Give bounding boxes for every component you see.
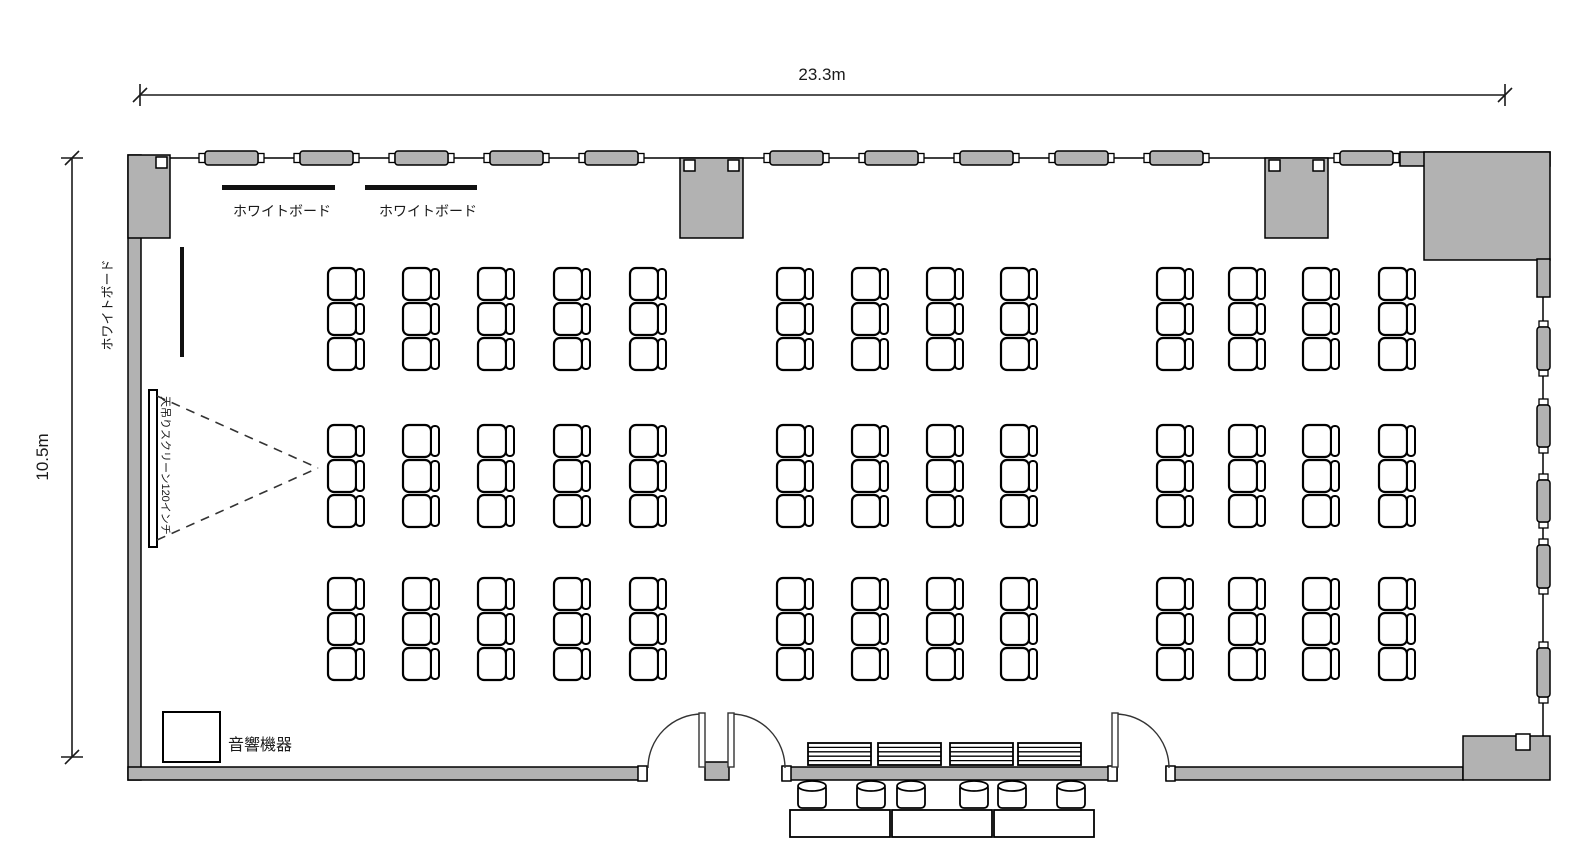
stool: [798, 781, 826, 808]
chair-seat: [777, 613, 805, 645]
chair-backrest: [880, 614, 888, 644]
chair-backrest: [1257, 614, 1265, 644]
chair-backrest: [880, 269, 888, 299]
window-end-cap: [1539, 474, 1548, 480]
chair: [630, 648, 666, 680]
bottom-right-notch: [1516, 734, 1530, 750]
window-end-cap: [543, 154, 549, 163]
chair-backrest: [582, 579, 590, 609]
chair-seat: [1001, 648, 1029, 680]
top-left-pillar-notch: [156, 157, 167, 168]
window-end-cap: [1539, 522, 1548, 528]
right-wall-stub: [1537, 259, 1550, 297]
stool: [960, 781, 988, 808]
chair-backrest: [1185, 461, 1193, 491]
chair: [777, 578, 813, 610]
chair: [1001, 613, 1037, 645]
chair: [554, 495, 590, 527]
chair-seat: [927, 578, 955, 610]
chair: [1379, 613, 1415, 645]
chair: [403, 425, 439, 457]
chair-seat: [478, 648, 506, 680]
door-right-arc: [731, 714, 785, 768]
chair: [328, 460, 364, 492]
window-end-cap: [1539, 447, 1548, 453]
chair: [1157, 303, 1193, 335]
chair: [403, 338, 439, 370]
chair: [1157, 268, 1193, 300]
stool-top: [998, 781, 1026, 791]
door-center-post: [705, 762, 729, 780]
chair: [328, 495, 364, 527]
chair-backrest: [658, 496, 666, 526]
chair-backrest: [955, 496, 963, 526]
chair-seat: [328, 338, 356, 370]
chair: [403, 268, 439, 300]
stacked-table-outline: [808, 743, 871, 765]
chair-backrest: [955, 426, 963, 456]
chair-backrest: [880, 426, 888, 456]
chair: [554, 613, 590, 645]
chair-seat: [1157, 425, 1185, 457]
chair: [777, 338, 813, 370]
chair-backrest: [1185, 496, 1193, 526]
bottom-wall-right: [1166, 767, 1463, 780]
chair-backrest: [880, 461, 888, 491]
chair-backrest: [805, 269, 813, 299]
chair: [1303, 303, 1339, 335]
chair-seat: [1157, 268, 1185, 300]
chair: [852, 425, 888, 457]
chair-backrest: [1257, 496, 1265, 526]
chair-backrest: [805, 461, 813, 491]
chair-backrest: [1257, 649, 1265, 679]
window: [1537, 480, 1550, 522]
chair: [403, 613, 439, 645]
chair: [328, 338, 364, 370]
chair-backrest: [1185, 649, 1193, 679]
chair-backrest: [506, 269, 514, 299]
chair-seat: [478, 268, 506, 300]
chair: [554, 425, 590, 457]
chair: [852, 495, 888, 527]
chair-backrest: [1029, 461, 1037, 491]
dimension-height-label: 10.5m: [33, 433, 52, 480]
chair-backrest: [658, 339, 666, 369]
window: [1055, 151, 1108, 165]
chair: [852, 613, 888, 645]
chair-backrest: [1407, 579, 1415, 609]
chair-seat: [1303, 268, 1331, 300]
chair-seat: [1001, 338, 1029, 370]
window: [1537, 405, 1550, 447]
chair-seat: [478, 338, 506, 370]
chair-seat: [852, 613, 880, 645]
window: [585, 151, 638, 165]
screen-beam-bottom: [157, 468, 318, 540]
window-end-cap: [199, 154, 205, 163]
chair-backrest: [1257, 426, 1265, 456]
chair: [328, 303, 364, 335]
floor-plan-canvas: 23.3m 10.5m: [0, 0, 1594, 864]
chair-seat: [1379, 303, 1407, 335]
chair-seat: [1001, 425, 1029, 457]
chair-backrest: [658, 269, 666, 299]
ceiling-screen-label: 天吊りスクリーン120インチ: [159, 396, 172, 535]
outside-table: [994, 810, 1094, 837]
chair-backrest: [506, 579, 514, 609]
chair: [927, 338, 963, 370]
chair: [852, 338, 888, 370]
chair: [554, 303, 590, 335]
chair: [1229, 268, 1265, 300]
chair-backrest: [582, 496, 590, 526]
chair: [630, 460, 666, 492]
chair-backrest: [1257, 579, 1265, 609]
chair-backrest: [1331, 614, 1339, 644]
chair-seat: [1379, 460, 1407, 492]
chair-seat: [1157, 578, 1185, 610]
chair-backrest: [431, 649, 439, 679]
chair: [1001, 578, 1037, 610]
chair-seat: [328, 303, 356, 335]
window-end-cap: [294, 154, 300, 163]
chair-backrest: [880, 649, 888, 679]
chair: [1229, 338, 1265, 370]
chair-backrest: [1185, 269, 1193, 299]
chair-seat: [554, 613, 582, 645]
chair-backrest: [356, 304, 364, 334]
chair-seat: [927, 303, 955, 335]
chair: [1001, 460, 1037, 492]
chair-backrest: [1185, 426, 1193, 456]
chair: [852, 648, 888, 680]
chair: [478, 495, 514, 527]
chair-backrest: [506, 461, 514, 491]
window: [300, 151, 353, 165]
chair-seat: [927, 495, 955, 527]
chair-backrest: [582, 426, 590, 456]
chair: [403, 495, 439, 527]
chair-seat: [1001, 460, 1029, 492]
chair-backrest: [658, 579, 666, 609]
audio-equipment-label: 音響機器: [228, 736, 292, 754]
chair: [1229, 495, 1265, 527]
chair-seat: [478, 578, 506, 610]
chair-backrest: [506, 496, 514, 526]
chair: [1229, 648, 1265, 680]
chair-backrest: [1029, 269, 1037, 299]
chair-seat: [554, 268, 582, 300]
top-right-block: [1424, 152, 1550, 260]
chair: [1157, 648, 1193, 680]
chair-seat: [1229, 425, 1257, 457]
chair-seat: [1303, 425, 1331, 457]
chair: [1001, 425, 1037, 457]
window-end-cap: [1393, 154, 1399, 163]
jamb-cap-1: [638, 766, 647, 781]
chair-seat: [554, 460, 582, 492]
chair-seat: [630, 648, 658, 680]
chair-backrest: [1331, 269, 1339, 299]
stacked-table-outline: [1018, 743, 1081, 765]
chair-seat: [852, 268, 880, 300]
chair-backrest: [1185, 579, 1193, 609]
chair: [328, 648, 364, 680]
chair-seat: [328, 648, 356, 680]
chair: [1001, 268, 1037, 300]
chair-backrest: [1029, 614, 1037, 644]
chair-seat: [403, 268, 431, 300]
chair-seat: [1001, 495, 1029, 527]
chair: [777, 303, 813, 335]
chair-seat: [777, 303, 805, 335]
window-end-cap: [1539, 321, 1548, 327]
chair-seat: [403, 303, 431, 335]
top-pillar-1-notch-left: [684, 160, 695, 171]
chair-seat: [403, 460, 431, 492]
chair: [478, 460, 514, 492]
chair-seat: [403, 495, 431, 527]
chair-backrest: [955, 461, 963, 491]
chair-seat: [1229, 268, 1257, 300]
chair: [1001, 338, 1037, 370]
chair-backrest: [1331, 649, 1339, 679]
chair: [1303, 613, 1339, 645]
chair: [478, 578, 514, 610]
stacked-table: [1018, 743, 1081, 765]
chair-seat: [630, 303, 658, 335]
chair: [630, 303, 666, 335]
chair: [1379, 303, 1415, 335]
chair-backrest: [658, 426, 666, 456]
chair-backrest: [658, 461, 666, 491]
chair: [1157, 460, 1193, 492]
chair-backrest: [431, 339, 439, 369]
outside-table: [892, 810, 992, 837]
chair-seat: [777, 578, 805, 610]
chair: [1379, 578, 1415, 610]
chair-seat: [852, 495, 880, 527]
chair-seat: [328, 268, 356, 300]
chair-backrest: [506, 614, 514, 644]
chair-backrest: [658, 614, 666, 644]
window: [865, 151, 918, 165]
chair: [403, 648, 439, 680]
window-end-cap: [1334, 154, 1340, 163]
stool: [857, 781, 885, 808]
chair-backrest: [431, 461, 439, 491]
chair-seat: [630, 338, 658, 370]
door-right-leaf: [728, 713, 734, 767]
chair-backrest: [356, 339, 364, 369]
chair-backrest: [805, 579, 813, 609]
chair-seat: [630, 578, 658, 610]
chair-seat: [328, 495, 356, 527]
chair-seat: [777, 495, 805, 527]
window-end-cap: [918, 154, 924, 163]
chair-seat: [1229, 338, 1257, 370]
bottom-wall-center: [782, 767, 1117, 780]
chair: [927, 495, 963, 527]
chair: [1379, 268, 1415, 300]
chair-backrest: [1407, 269, 1415, 299]
chair-backrest: [1331, 496, 1339, 526]
chair: [630, 578, 666, 610]
chair: [1157, 578, 1193, 610]
chair-seat: [403, 425, 431, 457]
chair-seat: [1379, 648, 1407, 680]
chair-backrest: [356, 649, 364, 679]
chair: [927, 303, 963, 335]
chair-seat: [852, 578, 880, 610]
chair-seat: [328, 613, 356, 645]
chair: [852, 578, 888, 610]
chair-backrest: [658, 304, 666, 334]
chair-seat: [1001, 578, 1029, 610]
chair-backrest: [582, 269, 590, 299]
chair-backrest: [955, 339, 963, 369]
window-end-cap: [1539, 370, 1548, 376]
window-end-cap: [1539, 539, 1548, 545]
chair-seat: [403, 338, 431, 370]
chair-backrest: [1407, 339, 1415, 369]
chair: [1379, 495, 1415, 527]
chair: [777, 613, 813, 645]
screen-beam-top: [157, 396, 318, 468]
chair-backrest: [506, 304, 514, 334]
chair-seat: [478, 495, 506, 527]
chair-backrest: [1407, 649, 1415, 679]
stool: [998, 781, 1026, 808]
top-pillar-2-notch-right: [1313, 160, 1324, 171]
chair-backrest: [1029, 496, 1037, 526]
chair: [1379, 460, 1415, 492]
chair-seat: [777, 338, 805, 370]
dimension-left: [61, 151, 83, 764]
chair: [777, 268, 813, 300]
chair-backrest: [506, 339, 514, 369]
chair: [403, 460, 439, 492]
door-single-arc: [1115, 714, 1169, 768]
chair-seat: [630, 613, 658, 645]
top-pillar-1-notch-right: [728, 160, 739, 171]
chair-seat: [1379, 338, 1407, 370]
chair-seat: [927, 425, 955, 457]
chair: [478, 648, 514, 680]
chair-seat: [1379, 613, 1407, 645]
chair-backrest: [506, 426, 514, 456]
whiteboard-top-right-bar: [365, 185, 477, 190]
door-left-leaf: [699, 713, 705, 767]
chair: [852, 268, 888, 300]
chair-seat: [478, 303, 506, 335]
chair: [554, 648, 590, 680]
chair-backrest: [582, 304, 590, 334]
window-end-cap: [823, 154, 829, 163]
chair-seat: [478, 613, 506, 645]
outside-table: [790, 810, 890, 837]
chair-seat: [1229, 495, 1257, 527]
chair: [1379, 425, 1415, 457]
left-wall: [128, 155, 141, 780]
chair-seat: [478, 460, 506, 492]
whiteboard-top-right-label: ホワイトボード: [379, 203, 477, 219]
chair-seat: [1303, 648, 1331, 680]
chair-backrest: [1407, 496, 1415, 526]
window-end-cap: [954, 154, 960, 163]
chair-backrest: [955, 614, 963, 644]
chair-seat: [1157, 460, 1185, 492]
chair-seat: [1303, 578, 1331, 610]
window: [1537, 327, 1550, 370]
chair-seat: [403, 578, 431, 610]
chair-backrest: [1029, 339, 1037, 369]
window-end-cap: [764, 154, 770, 163]
chair: [554, 338, 590, 370]
chair-seat: [777, 425, 805, 457]
dimension-width-label: 23.3m: [798, 65, 845, 84]
window-end-cap: [1539, 588, 1548, 594]
window: [960, 151, 1013, 165]
chair-seat: [1001, 268, 1029, 300]
chair-backrest: [658, 649, 666, 679]
stool-top: [960, 781, 988, 791]
window: [1537, 545, 1550, 588]
chair-seat: [1303, 303, 1331, 335]
chair: [630, 425, 666, 457]
chair-seat: [1303, 495, 1331, 527]
chair-seat: [478, 425, 506, 457]
chair-backrest: [1331, 304, 1339, 334]
chair-backrest: [1407, 426, 1415, 456]
stacked-table-outline: [878, 743, 941, 765]
chair-seat: [777, 648, 805, 680]
outside-tables: [790, 810, 1094, 837]
chair-seat: [1379, 268, 1407, 300]
chair: [1157, 495, 1193, 527]
chair-backrest: [431, 269, 439, 299]
chair: [1303, 268, 1339, 300]
chair: [328, 425, 364, 457]
chair: [777, 460, 813, 492]
chair-seat: [1157, 648, 1185, 680]
window: [1150, 151, 1203, 165]
chair-seat: [328, 425, 356, 457]
stool: [1057, 781, 1085, 808]
chair-seat: [554, 578, 582, 610]
window: [490, 151, 543, 165]
chair-backrest: [1407, 304, 1415, 334]
chair-seat: [852, 303, 880, 335]
window-end-cap: [859, 154, 865, 163]
whiteboard-top-left-label: ホワイトボード: [233, 203, 331, 219]
chair: [478, 268, 514, 300]
chair-backrest: [1331, 579, 1339, 609]
chair: [1229, 303, 1265, 335]
chair: [328, 578, 364, 610]
chair: [1379, 338, 1415, 370]
chair: [1303, 338, 1339, 370]
bottom-wall-left: [128, 767, 647, 780]
chair: [478, 338, 514, 370]
chair-seat: [630, 460, 658, 492]
jamb-cap-4: [1166, 766, 1175, 781]
chair: [1229, 578, 1265, 610]
window: [1340, 151, 1393, 165]
chair: [1001, 648, 1037, 680]
chair: [328, 268, 364, 300]
